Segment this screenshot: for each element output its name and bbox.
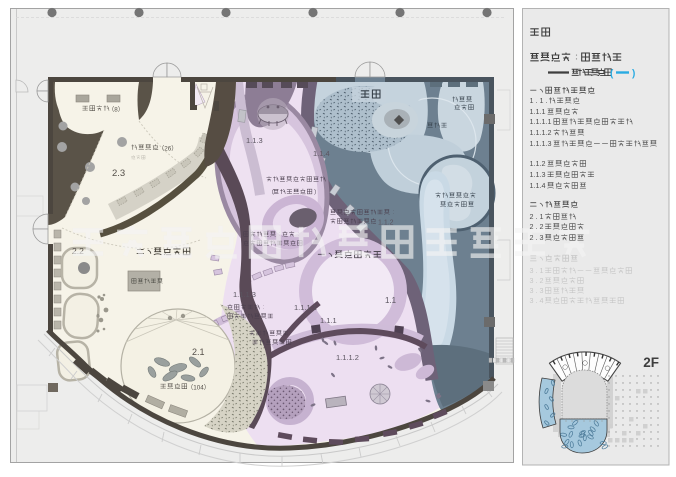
svg-text:1.1.3: 1.1.3	[246, 136, 263, 145]
svg-text:2 . 2: 2 . 2	[530, 222, 544, 231]
svg-text:): )	[632, 69, 635, 80]
svg-text:1.1.1.1: 1.1.1.1	[530, 117, 552, 126]
svg-text:2F: 2F	[643, 355, 659, 370]
svg-text:2.3: 2.3	[112, 168, 125, 179]
svg-text:1.1: 1.1	[385, 296, 397, 305]
svg-text:2 . 1: 2 . 1	[530, 212, 544, 221]
svg-text:1 . 1 .: 1 . 1 .	[530, 96, 548, 105]
svg-text:2 . 3: 2 . 3	[530, 233, 544, 242]
svg-text:1.1.2: 1.1.2	[530, 159, 546, 168]
svg-text:3 . 1: 3 . 1	[530, 266, 544, 275]
svg-text:1.1.1.3: 1.1.1.3	[233, 290, 256, 299]
svg-text:3 . 4: 3 . 4	[530, 296, 544, 305]
svg-text:）: ）	[314, 190, 320, 197]
svg-text:（8）: （8）	[108, 107, 124, 114]
svg-text:1.1.1.1: 1.1.1.1	[294, 303, 317, 312]
svg-text:2.1: 2.1	[192, 347, 205, 357]
svg-text:1.1.1.2: 1.1.1.2	[336, 353, 359, 362]
svg-text:1.1.1: 1.1.1	[530, 107, 546, 116]
svg-text:（: （	[268, 190, 274, 197]
svg-text:1.1.4: 1.1.4	[313, 149, 330, 158]
svg-text:1.1.4: 1.1.4	[530, 181, 546, 190]
svg-text:3 . 2: 3 . 2	[530, 276, 544, 285]
svg-text:3 . 3: 3 . 3	[530, 286, 544, 295]
svg-text:（104）: （104）	[187, 385, 210, 392]
svg-text:1.1.1: 1.1.1	[320, 316, 337, 325]
svg-text:1.1.1.3: 1.1.1.3	[530, 139, 552, 148]
svg-text:（26）: （26）	[158, 146, 178, 153]
svg-text:1.1.3: 1.1.3	[530, 170, 546, 179]
svg-text:1.1.1.2: 1.1.1.2	[530, 128, 552, 137]
